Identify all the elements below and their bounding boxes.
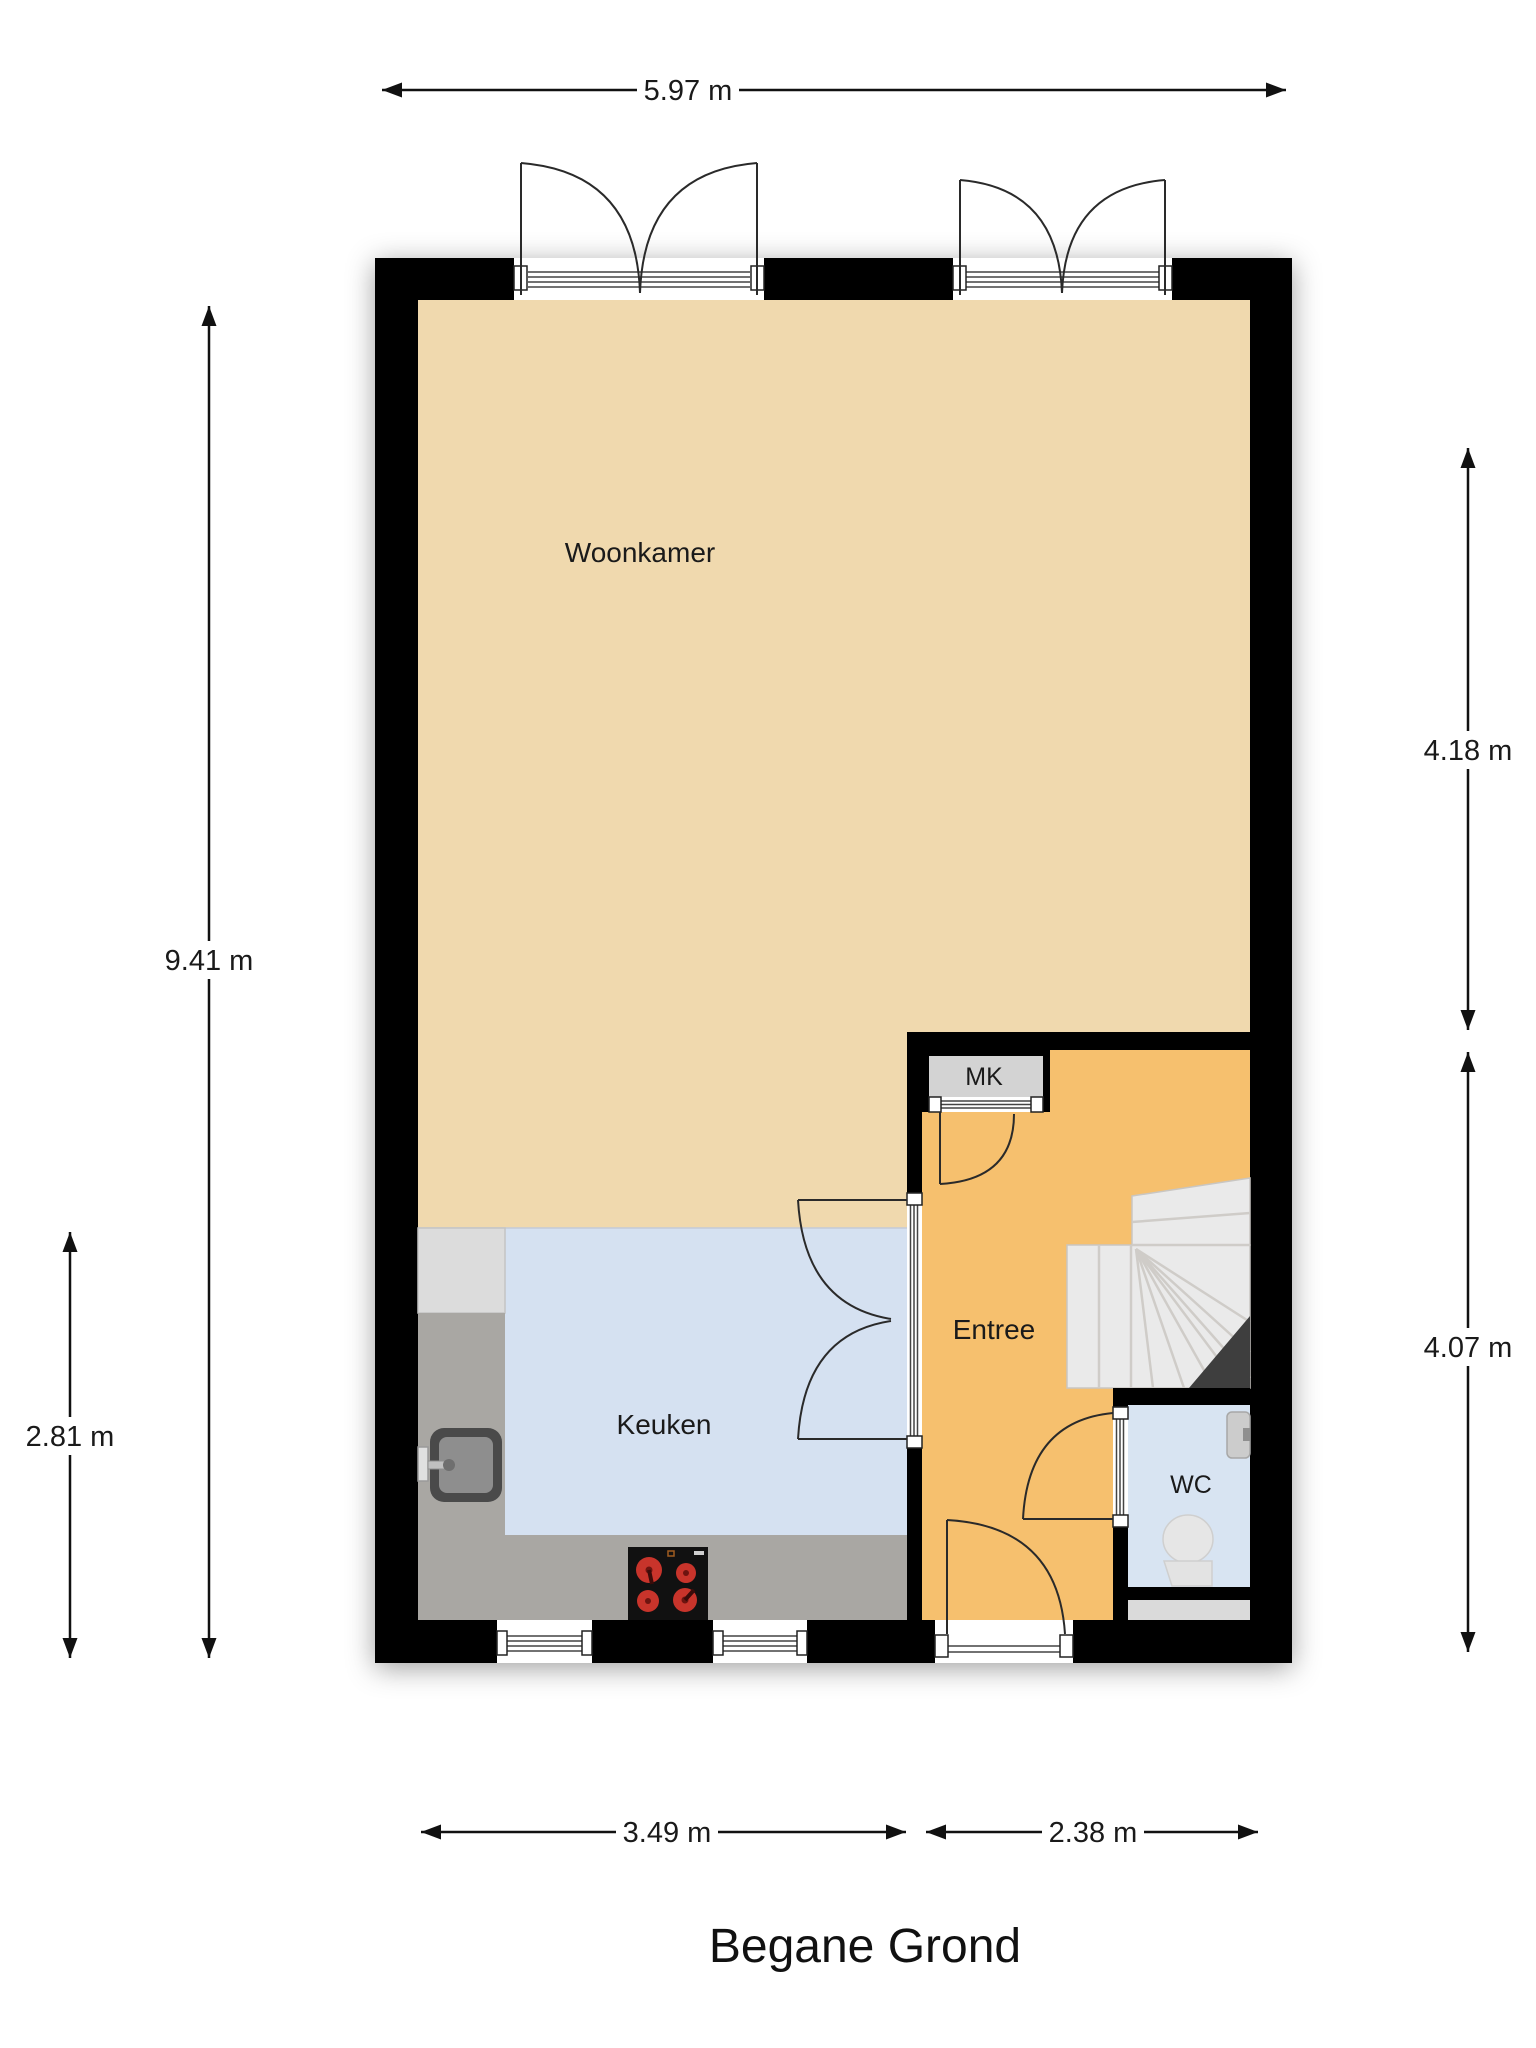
arrow-head-left bbox=[926, 1825, 946, 1840]
cooktop bbox=[628, 1547, 708, 1620]
wc-bottom-wall bbox=[1113, 1587, 1250, 1600]
dimension-label: 2.81 m bbox=[26, 1421, 115, 1453]
dimension-bottom-kitchen: 3.49 m bbox=[421, 1813, 906, 1851]
arrow-head-down bbox=[1461, 1010, 1476, 1030]
arrow-head-right bbox=[1238, 1825, 1258, 1840]
french-door-right bbox=[953, 180, 1172, 300]
arrow-head-up bbox=[202, 306, 217, 326]
dimension-label: 9.41 m bbox=[165, 945, 254, 977]
arrow-head-down bbox=[202, 1638, 217, 1658]
floor-plan-svg: Woonkamer Keuken Entree MK WC 5.97 m 9.4… bbox=[0, 0, 1536, 2048]
entree-label: Entree bbox=[953, 1314, 1036, 1345]
kitchen-sink bbox=[418, 1428, 502, 1502]
woonkamer-label: Woonkamer bbox=[565, 537, 715, 568]
floor-plan-page: Woonkamer Keuken Entree MK WC 5.97 m 9.4… bbox=[0, 0, 1536, 2048]
wc-label: WC bbox=[1170, 1471, 1212, 1499]
door-jamb bbox=[1113, 1515, 1128, 1527]
door-jamb bbox=[907, 1193, 922, 1205]
dimension-label: 4.07 m bbox=[1424, 1332, 1513, 1364]
arrow-head-up bbox=[1461, 448, 1476, 468]
dimension-top-width: 5.97 m bbox=[382, 71, 1286, 109]
door-jamb bbox=[1113, 1407, 1128, 1419]
dimension-left-kitchen-height: 2.81 m bbox=[18, 1232, 122, 1658]
door-jamb bbox=[929, 1097, 941, 1112]
door-jamb bbox=[1031, 1097, 1043, 1112]
dimension-bottom-entree: 2.38 m bbox=[926, 1813, 1258, 1851]
toilet-tank bbox=[1164, 1561, 1212, 1586]
window-jamb bbox=[582, 1631, 592, 1655]
building-interior bbox=[418, 300, 1250, 1620]
door-jamb bbox=[935, 1635, 948, 1657]
french-door-left bbox=[514, 163, 764, 300]
arrow-head-right bbox=[886, 1825, 906, 1840]
wall-above-wc bbox=[1113, 1388, 1250, 1405]
arrow-head-left bbox=[421, 1825, 441, 1840]
arrow-head-up bbox=[1461, 1052, 1476, 1072]
dimension-label: 4.18 m bbox=[1424, 735, 1513, 767]
dimension-label: 5.97 m bbox=[644, 75, 733, 107]
door-jamb bbox=[1060, 1635, 1073, 1657]
arrow-head-right bbox=[1266, 83, 1286, 98]
arrow-head-left bbox=[382, 83, 402, 98]
dimension-label: 3.49 m bbox=[623, 1817, 712, 1849]
wall-woonkamer-entree bbox=[907, 1032, 1250, 1050]
dimension-right-lower: 4.07 m bbox=[1416, 1052, 1520, 1652]
cooktop-panel bbox=[628, 1547, 708, 1620]
sink-drain bbox=[443, 1459, 455, 1471]
window-jamb bbox=[797, 1631, 807, 1655]
window-jamb bbox=[713, 1631, 723, 1655]
entry-step-strip bbox=[1128, 1600, 1250, 1620]
kitchen-appliance-cabinet bbox=[418, 1228, 505, 1313]
arrow-head-down bbox=[1461, 1632, 1476, 1652]
cooktop-controls bbox=[694, 1551, 704, 1555]
wc-basin-tap bbox=[1243, 1428, 1250, 1441]
kitchen-window-right bbox=[713, 1620, 807, 1663]
window-jamb bbox=[497, 1631, 507, 1655]
sink-faucet-stem bbox=[428, 1461, 445, 1469]
burner-center bbox=[645, 1598, 651, 1604]
arrow-head-up bbox=[63, 1232, 78, 1252]
burner-center bbox=[683, 1570, 689, 1576]
mk-label: MK bbox=[965, 1063, 1003, 1091]
dimension-label: 2.38 m bbox=[1049, 1817, 1138, 1849]
door-jamb bbox=[907, 1436, 922, 1448]
sink-faucet-plate bbox=[418, 1447, 428, 1481]
floor-title: Begane Grond bbox=[709, 1920, 1021, 1973]
kitchen-window-left bbox=[497, 1620, 592, 1663]
dimension-left-total-height: 9.41 m bbox=[157, 306, 261, 1658]
front-door-opening bbox=[935, 1620, 1073, 1663]
toilet-bowl bbox=[1163, 1515, 1213, 1563]
dimension-right-upper: 4.18 m bbox=[1416, 448, 1520, 1030]
arrow-head-down bbox=[63, 1638, 78, 1658]
keuken-label: Keuken bbox=[617, 1409, 712, 1440]
